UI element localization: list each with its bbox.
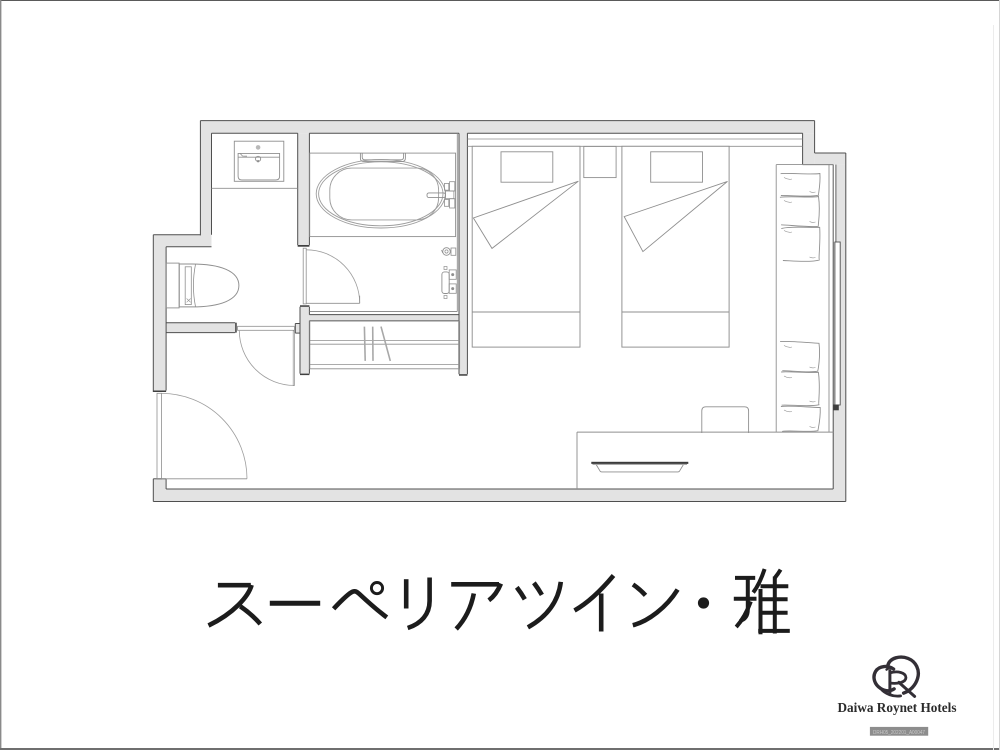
svg-text:DRH05_202201_A00047: DRH05_202201_A00047 — [873, 730, 925, 736]
svg-text:Daiwa Roynet Hotels: Daiwa Roynet Hotels — [838, 700, 957, 715]
